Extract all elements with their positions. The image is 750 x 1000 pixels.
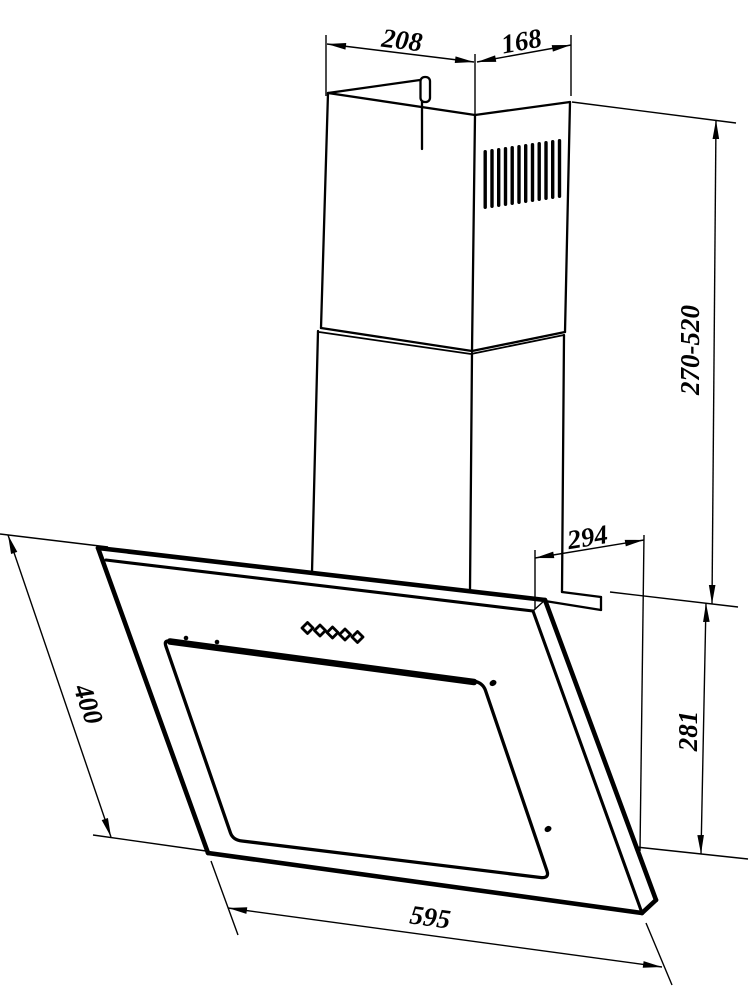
upper-flue-back-right-edge [565, 102, 570, 332]
extension-line [572, 102, 736, 123]
hood-right-inner-edge [533, 611, 642, 913]
extension-line [646, 923, 672, 985]
extension-line [211, 861, 238, 935]
extension-line [636, 847, 748, 859]
flue-seam-front-2 [319, 332, 471, 354]
arrowhead-icon [697, 835, 704, 854]
vent-slot [504, 147, 507, 206]
wall-mounting-plate [545, 592, 601, 610]
dim-hood-side-height: 281 [636, 603, 748, 859]
upper-flue-left-edge [321, 93, 328, 328]
bracket-hook-icon [421, 77, 431, 102]
dim-chimney-side-depth: 168 [476, 23, 571, 96]
bracket-flap-edge [328, 80, 420, 93]
flue-seam-side-2 [471, 335, 564, 354]
lower-flue-front-right-edge [470, 353, 472, 590]
dim-label-281: 281 [673, 711, 703, 753]
vent-slot [490, 149, 493, 208]
screw-icon [543, 825, 552, 834]
control-button [315, 625, 326, 636]
vent-slot [517, 145, 520, 204]
dim-hood-top-depth: 294 [534, 519, 644, 851]
control-button [302, 623, 313, 634]
arrowhead-icon [709, 585, 716, 604]
dim-label-270-520: 270-520 [675, 305, 705, 396]
chimney-upper-section [319, 77, 570, 354]
glass-hinge-pin-icon [215, 640, 220, 645]
dim-label-168: 168 [499, 23, 545, 60]
arrowhead-icon [102, 818, 114, 838]
arrowhead-icon [703, 603, 710, 622]
vent-slot [511, 146, 514, 205]
glass-hinge-pin-icon [184, 636, 189, 641]
upper-flue-front-top-edge [328, 93, 475, 115]
hood-right-outer-edge [545, 600, 656, 900]
arrowhead-icon [455, 56, 475, 65]
vent-grille [484, 139, 562, 209]
dim-label-400: 400 [67, 679, 109, 728]
lower-flue-left-edge [312, 331, 318, 572]
dim-front-panel-length: 400 [0, 534, 206, 851]
extension-line [93, 835, 206, 851]
dim-chimney-front-width: 208 [326, 23, 475, 114]
hood-right-foot-notch [642, 900, 656, 913]
dim-label-294: 294 [564, 519, 610, 555]
vent-slot [551, 140, 554, 199]
arrowhead-icon [476, 55, 496, 65]
flue-seam-front [321, 328, 472, 351]
vent-slot [524, 144, 527, 203]
extension-line [0, 534, 108, 547]
arrowhead-icon [534, 552, 554, 562]
vent-slot [544, 141, 547, 200]
glass-panel-top-band [170, 642, 474, 683]
hood-left-edge [98, 548, 208, 853]
vent-slot [484, 150, 487, 209]
control-button [327, 627, 338, 638]
arrowhead-icon [643, 961, 663, 970]
upper-flue-side-top-edge [475, 102, 570, 115]
dim-label-208: 208 [379, 23, 424, 58]
control-button [340, 629, 351, 640]
vent-slot [538, 142, 541, 201]
hood-top-outer-edge [98, 548, 545, 600]
control-button-row [302, 623, 363, 643]
control-button [352, 632, 363, 643]
upper-flue-front-right-edge [472, 115, 475, 351]
dim-hood-width: 595 [211, 861, 672, 985]
arrowhead-icon [5, 534, 17, 554]
hood-body [98, 548, 656, 913]
dim-label-595: 595 [408, 900, 452, 935]
vent-slot [531, 143, 534, 202]
dimension-line [712, 120, 716, 604]
hood-dimension-drawing: 208 168 270-520 294 [0, 0, 750, 1000]
dimension-drawing-canvas: 208 168 270-520 294 [0, 0, 750, 1000]
vent-slot [497, 148, 500, 207]
vent-slot [558, 139, 561, 198]
screw-icon [488, 679, 497, 688]
arrowhead-icon [713, 120, 720, 139]
arrowhead-icon [625, 537, 645, 547]
plate-top-edge [562, 592, 601, 597]
arrowhead-icon [552, 42, 572, 52]
extension-line [610, 592, 738, 607]
arrowhead-icon [327, 41, 347, 50]
flue-seam-side [472, 332, 565, 351]
plate-bottom-edge [545, 601, 601, 610]
extension-line [640, 535, 644, 851]
chimney-lower-section [312, 331, 564, 592]
glass-panel-outline [165, 641, 547, 878]
